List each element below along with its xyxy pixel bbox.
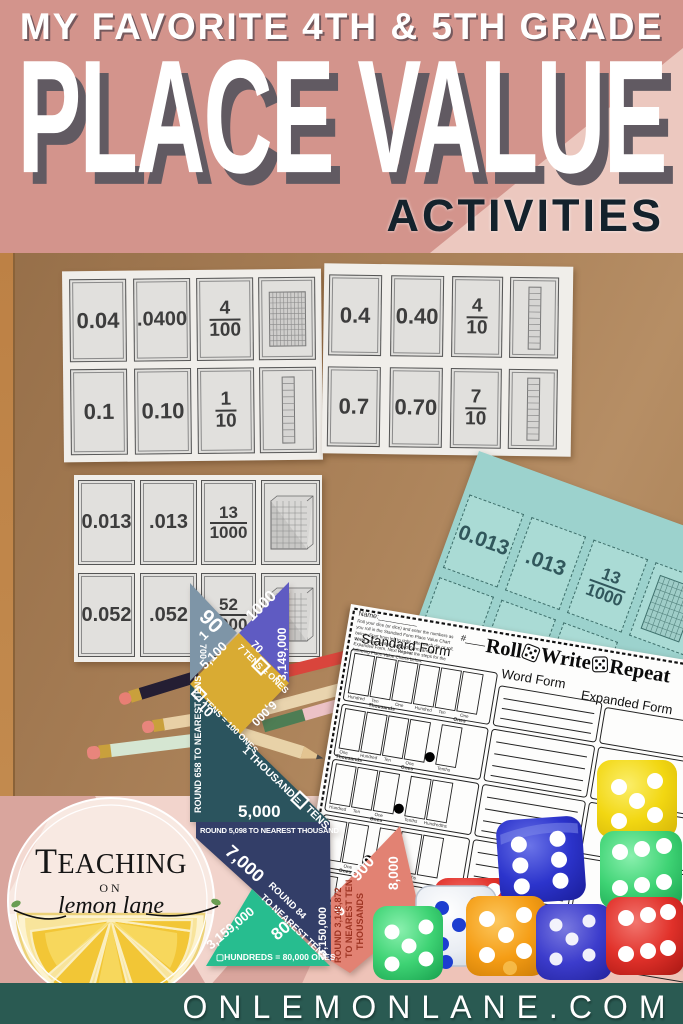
svg-text:▢HUNDREDS = 80,000 ONES: ▢HUNDREDS = 80,000 ONES [216,952,336,962]
svg-text:3,150,000: 3,150,000 [317,907,329,956]
svg-text:ROUND 5,098 TO NEAREST THOUSAN: ROUND 5,098 TO NEAREST THOUSAND [200,826,340,835]
svg-text:5,000: 5,000 [238,802,281,821]
svg-text:3,149,000: 3,149,000 [275,627,289,681]
svg-text:ROUND 658 TO NEAREST TENS: ROUND 658 TO NEAREST TENS [193,676,203,813]
svg-text:ROUND 3,148,872: ROUND 3,148,872 [333,887,343,963]
